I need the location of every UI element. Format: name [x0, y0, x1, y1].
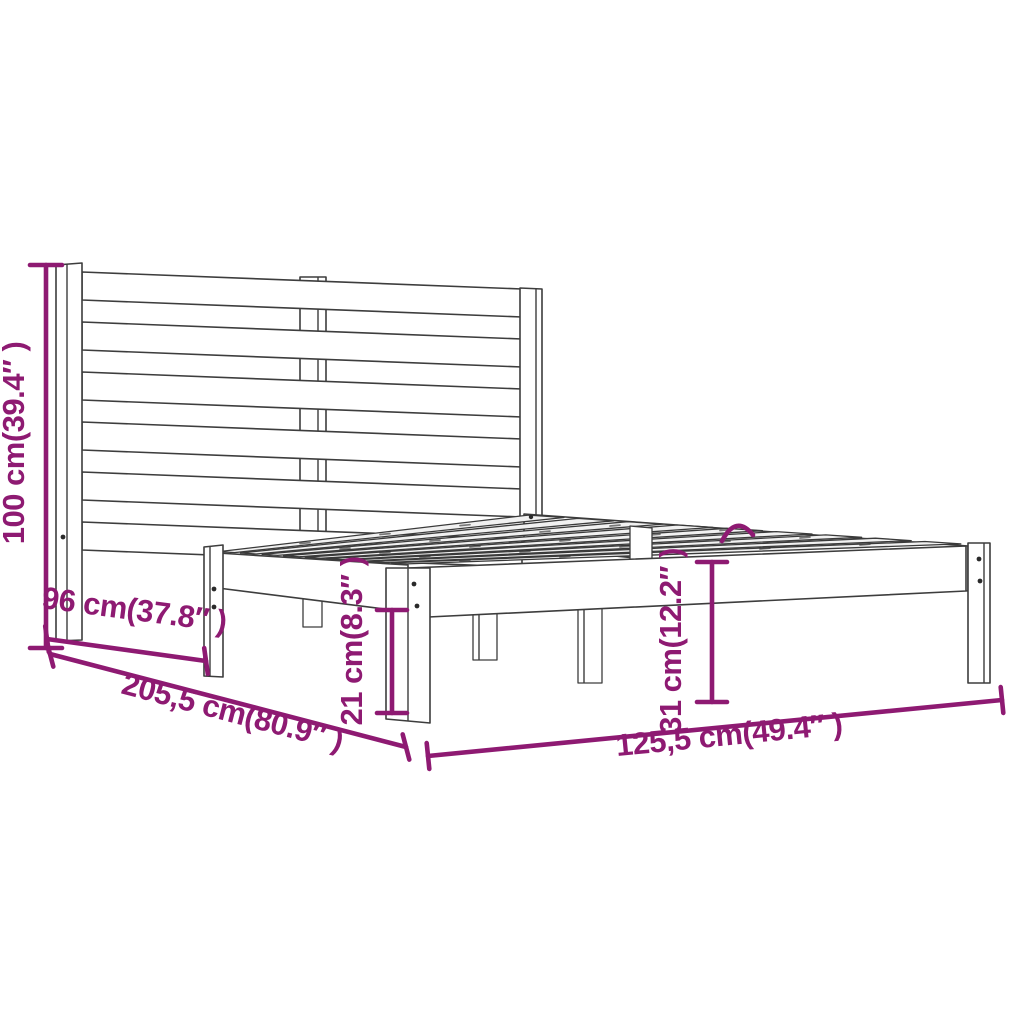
dimension-label-total-length: 205,5 cm(80.9″ ): [118, 666, 347, 758]
dimension-label-headboard-height: 100 cm(39.4″ ): [0, 342, 31, 545]
headboard-right-post: [520, 288, 542, 522]
headboard-center-post: [300, 277, 326, 560]
dimension-label-clearance-height: 21 cm(8.3″ ): [334, 556, 369, 725]
center-support-leg-2: [578, 600, 602, 683]
bed-illustration: [56, 263, 990, 723]
foot-far-leg: [968, 543, 990, 683]
center-rail-end: [630, 526, 652, 560]
center-support-stub: [303, 598, 322, 627]
dimension-total-width: 125,5 cm(49.4″ ): [427, 687, 1004, 769]
dimension-label-total-width: 125,5 cm(49.4″ ): [614, 706, 844, 763]
bed-frame-drawing: 100 cm(39.4″ ) 96 cm(37.8″ ) 205,5 cm(80…: [0, 0, 1024, 1024]
product-dimension-diagram: 100 cm(39.4″ ) 96 cm(37.8″ ) 205,5 cm(80…: [0, 0, 1024, 1024]
dimension-label-platform-height: 31 cm(12.2″ ): [653, 548, 688, 734]
